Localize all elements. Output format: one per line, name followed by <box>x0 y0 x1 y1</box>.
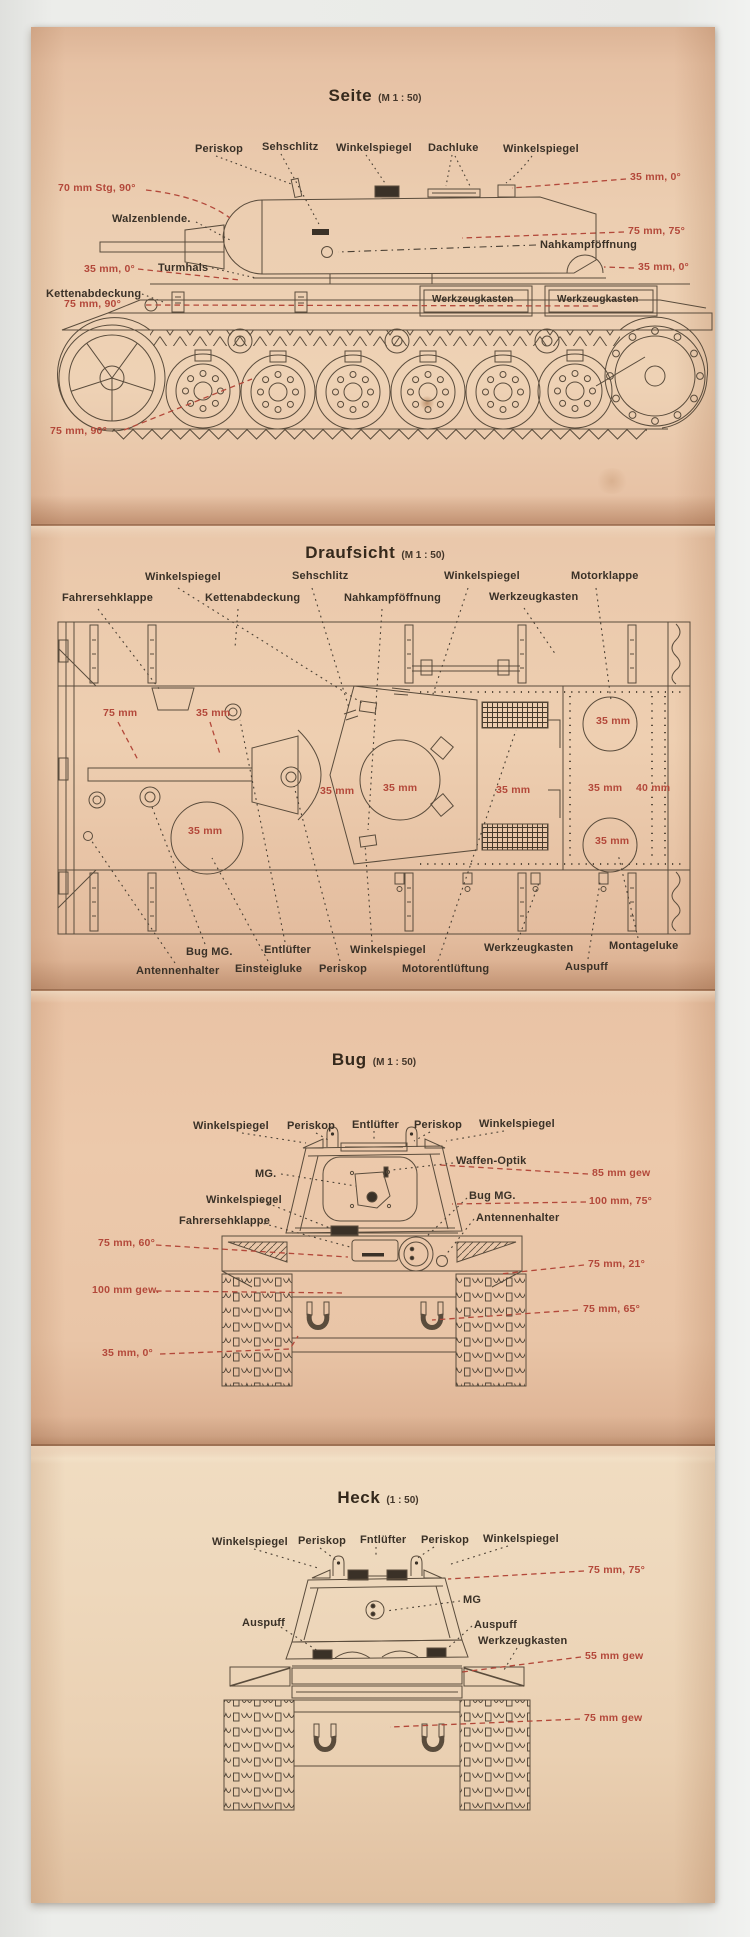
scanned-sheet-photo: Seite(M 1 : 50) Draufsicht(M 1 : 50) Bug… <box>0 0 750 1937</box>
panel-title-draufsicht: Draufsicht(M 1 : 50) <box>305 543 444 563</box>
title-text: Bug <box>332 1050 367 1069</box>
panel-title-heck: Heck(1 : 50) <box>337 1488 418 1508</box>
title-text: Seite <box>329 86 373 105</box>
side-view-diagram <box>58 154 712 440</box>
title-scale: (1 : 50) <box>386 1495 418 1506</box>
title-scale: (M 1 : 50) <box>378 93 421 104</box>
panel-title-bug: Bug(M 1 : 50) <box>332 1050 416 1070</box>
title-text: Draufsicht <box>305 543 395 562</box>
title-scale: (M 1 : 50) <box>401 550 444 561</box>
title-scale: (M 1 : 50) <box>373 1057 416 1068</box>
front-view-diagram <box>156 1127 588 1386</box>
diagram-artwork <box>0 0 750 1937</box>
top-view-diagram <box>58 588 690 963</box>
title-text: Heck <box>337 1488 380 1507</box>
rear-view-diagram <box>224 1546 584 1810</box>
panel-title-seite: Seite(M 1 : 50) <box>329 86 422 106</box>
